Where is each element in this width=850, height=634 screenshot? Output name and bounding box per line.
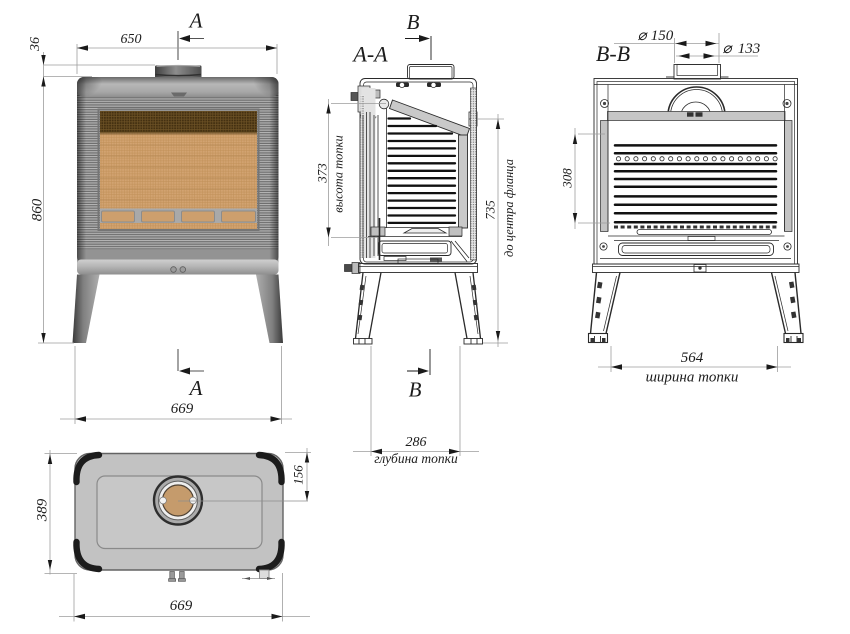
svg-text:389: 389 [35,498,51,522]
svg-text:133: 133 [738,41,761,57]
svg-text:669: 669 [171,401,194,417]
svg-text:735: 735 [483,200,498,220]
svg-text:⌀: ⌀ [722,41,733,57]
svg-text:150: 150 [651,28,674,44]
svg-text:373: 373 [315,163,330,184]
svg-text:36: 36 [28,37,43,52]
svg-text:A: A [188,9,203,33]
svg-text:B-B: B-B [596,41,630,66]
svg-text:669: 669 [170,598,193,614]
svg-text:564: 564 [681,350,704,366]
svg-text:156: 156 [291,465,306,485]
svg-text:до центра фланца: до центра фланца [502,159,516,257]
svg-text:A: A [188,376,203,400]
svg-text:286: 286 [406,435,427,450]
svg-text:B: B [407,10,420,34]
svg-text:глубина топки: глубина топки [374,451,458,466]
svg-text:308: 308 [560,168,575,189]
svg-text:B: B [409,378,422,402]
svg-text:⌀: ⌀ [637,28,648,44]
svg-text:860: 860 [30,198,46,221]
svg-text:A-A: A-A [351,42,388,67]
svg-text:высота топки: высота топки [332,135,346,213]
svg-text:650: 650 [121,32,142,47]
svg-text:ширина топки: ширина топки [646,370,739,386]
